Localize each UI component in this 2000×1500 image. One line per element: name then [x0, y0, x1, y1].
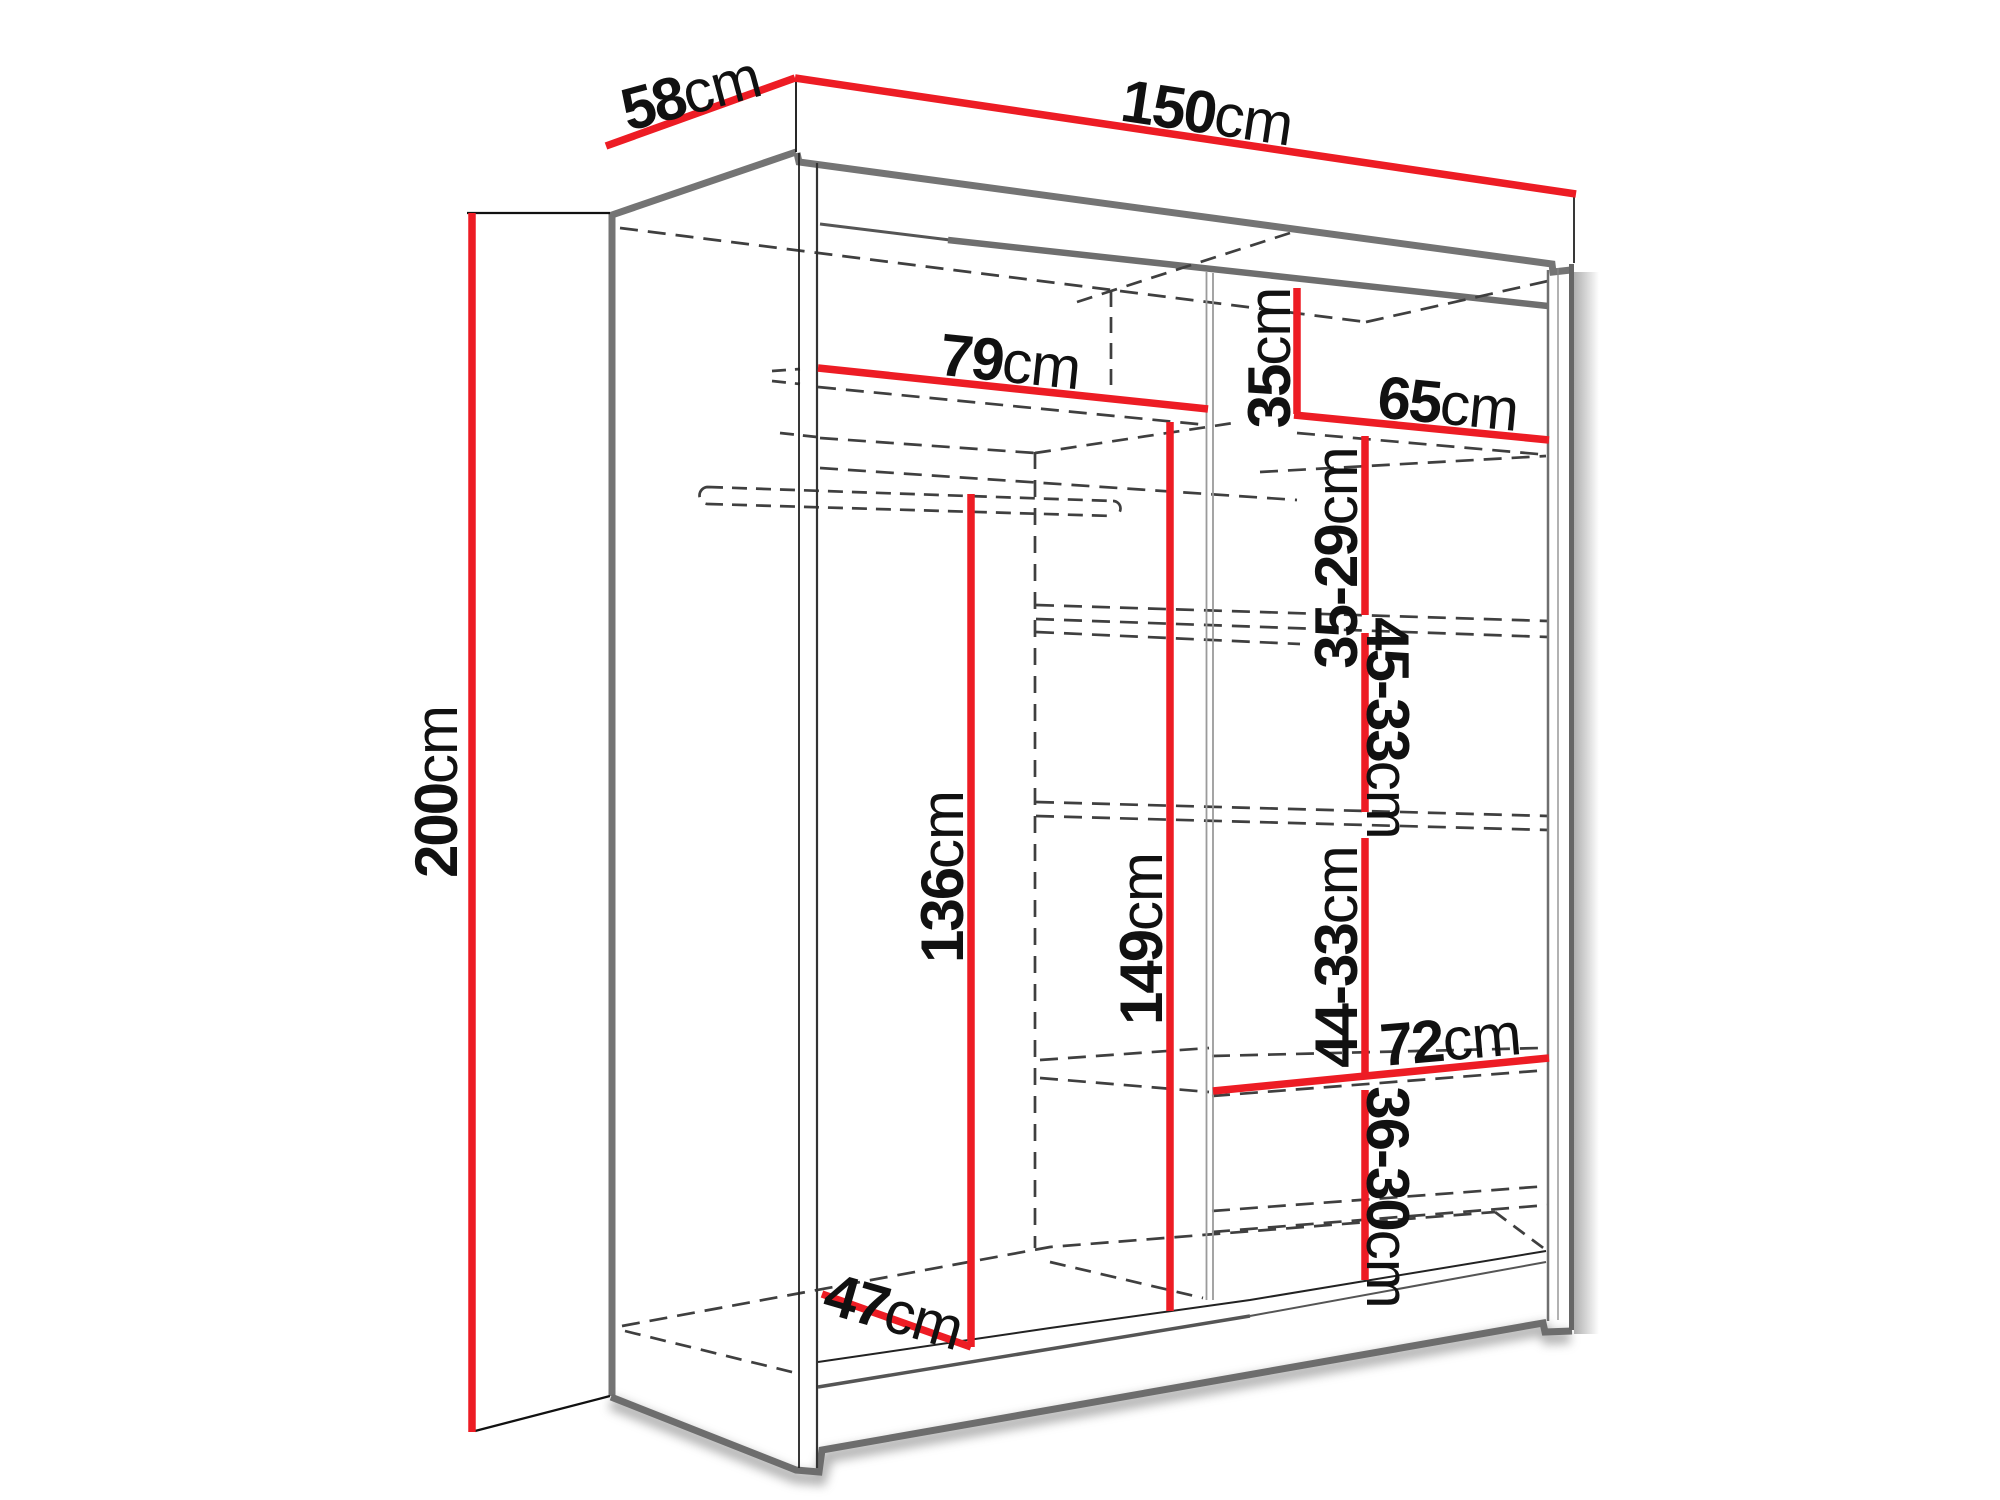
svg-text:36-30cm: 36-30cm	[1354, 1086, 1421, 1307]
svg-text:44-33cm: 44-33cm	[1303, 846, 1370, 1067]
svg-text:35cm: 35cm	[1236, 288, 1303, 429]
svg-text:45-33cm: 45-33cm	[1354, 617, 1421, 838]
svg-text:200cm: 200cm	[403, 706, 470, 878]
svg-text:136cm: 136cm	[909, 791, 976, 963]
svg-text:72cm: 72cm	[1377, 1000, 1523, 1079]
svg-text:149cm: 149cm	[1108, 853, 1175, 1025]
svg-text:65cm: 65cm	[1375, 363, 1522, 443]
